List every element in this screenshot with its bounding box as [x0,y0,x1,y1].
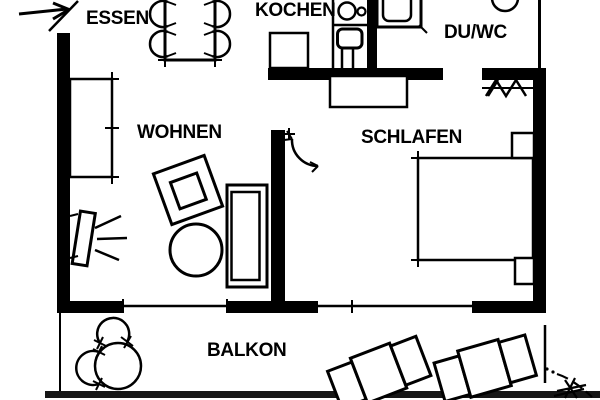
floor-plan-drawing [0,0,600,400]
kitchen-sink-small-bowl-icon [358,8,366,16]
toilet-icon [492,0,518,11]
nightstand-bottom-icon [515,258,534,284]
cupboard-icon [70,72,119,184]
window-wohnen [123,299,227,313]
entrance-arrow-icon [19,1,78,31]
wardrobe-icon [330,76,407,107]
armchair-icon [153,155,222,224]
wall-wohnen-schlafen [271,130,285,313]
kitchen-stove-icon [338,29,363,48]
balcony-table-icon [95,343,141,389]
room-label-wohnen: WOHNEN [137,123,222,142]
room-label-schlafen: SCHLAFEN [361,128,462,147]
wall-duwc-bottom [482,68,546,80]
balcony-front-edge [45,391,600,398]
room-label-balkon: BALKON [207,341,286,360]
window-schlafen [318,300,472,313]
bed-icon [411,151,533,267]
room-label-duwc: DU/WC [444,23,507,42]
sun-lounger-left-icon [326,334,432,400]
wall-bottom-left [57,301,123,313]
floor-plan: ESSEN KOCHEN DU/WC WOHNEN SCHLAFEN BALKO… [0,0,600,400]
wall-left-outer [57,33,70,313]
nightstand-top-icon [512,133,534,158]
kitchen-unit-icon [333,0,367,69]
kitchen-sink-bowl-icon [339,3,356,20]
sun-lounger-right-icon [433,332,538,400]
dining-table-icon [150,0,230,67]
room-label-kochen: KOCHEN [255,1,336,20]
coat-rack-icon [482,80,533,96]
room-label-essen: ESSEN [86,9,149,28]
door-swing-icon [283,128,318,172]
shower-icon [377,0,427,33]
kitchen-counter-icon [270,33,308,68]
sofa-icon [227,185,267,287]
coffee-table-icon [170,224,222,276]
tv-icon [70,211,127,266]
